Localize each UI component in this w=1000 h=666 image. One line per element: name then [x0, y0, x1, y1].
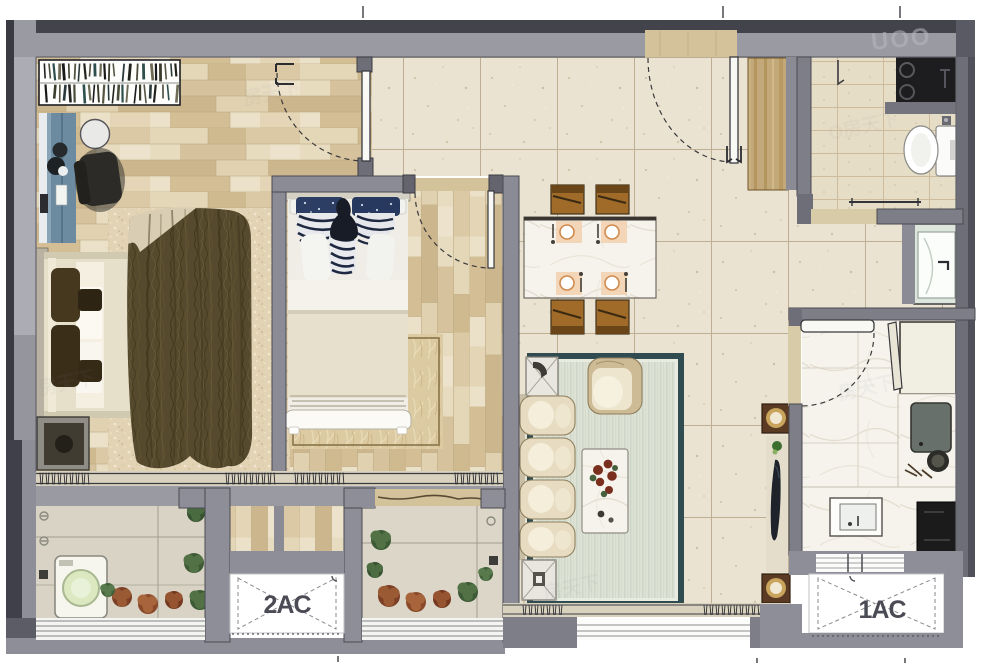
svg-text:2AC: 2AC: [263, 591, 311, 619]
svg-text:1AC: 1AC: [858, 596, 906, 624]
